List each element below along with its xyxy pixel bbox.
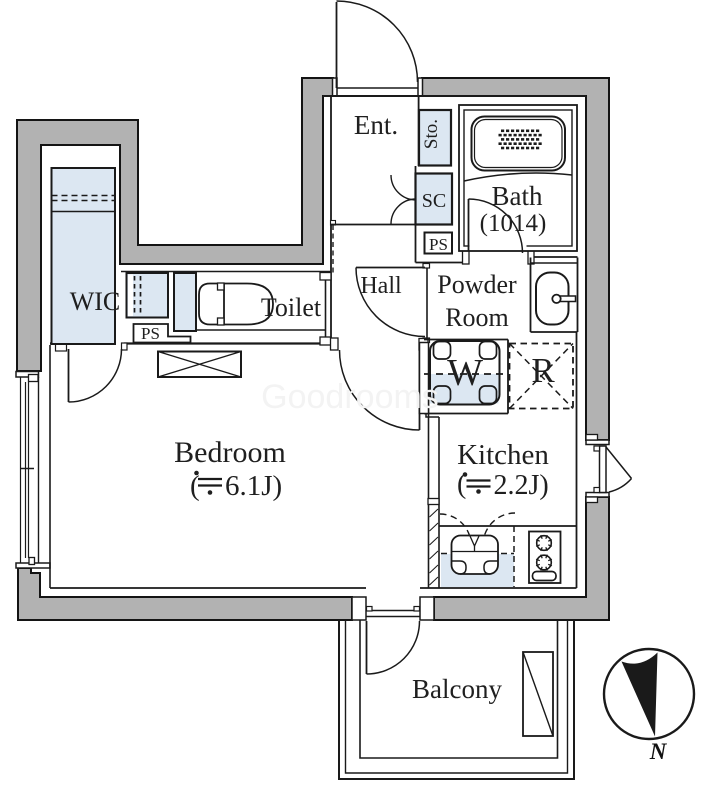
svg-text:(1014): (1014)	[480, 210, 547, 237]
svg-text:Powder: Powder	[437, 270, 517, 299]
svg-text:Goodrooms: Goodrooms	[261, 378, 439, 416]
svg-text:Room: Room	[445, 303, 509, 332]
svg-text:N: N	[649, 739, 668, 764]
svg-text:WIC: WIC	[70, 287, 121, 316]
svg-text:Ent.: Ent.	[354, 110, 398, 140]
svg-text:Bedroom: Bedroom	[174, 436, 286, 469]
svg-text:Sto.: Sto.	[421, 119, 442, 149]
svg-text:2.2J): 2.2J)	[494, 470, 549, 501]
svg-text:Hall: Hall	[360, 273, 402, 299]
svg-text:Toilet: Toilet	[261, 293, 322, 322]
svg-text:6.1J): 6.1J)	[225, 470, 282, 502]
svg-text:PS: PS	[429, 235, 448, 254]
svg-text:Kitchen: Kitchen	[457, 439, 549, 471]
svg-text:Balcony: Balcony	[412, 674, 502, 704]
svg-text:Bath: Bath	[492, 181, 543, 211]
svg-text:W: W	[447, 352, 483, 394]
svg-text:PS: PS	[141, 324, 160, 343]
svg-text:R: R	[531, 351, 555, 390]
svg-text:SC: SC	[422, 190, 446, 212]
